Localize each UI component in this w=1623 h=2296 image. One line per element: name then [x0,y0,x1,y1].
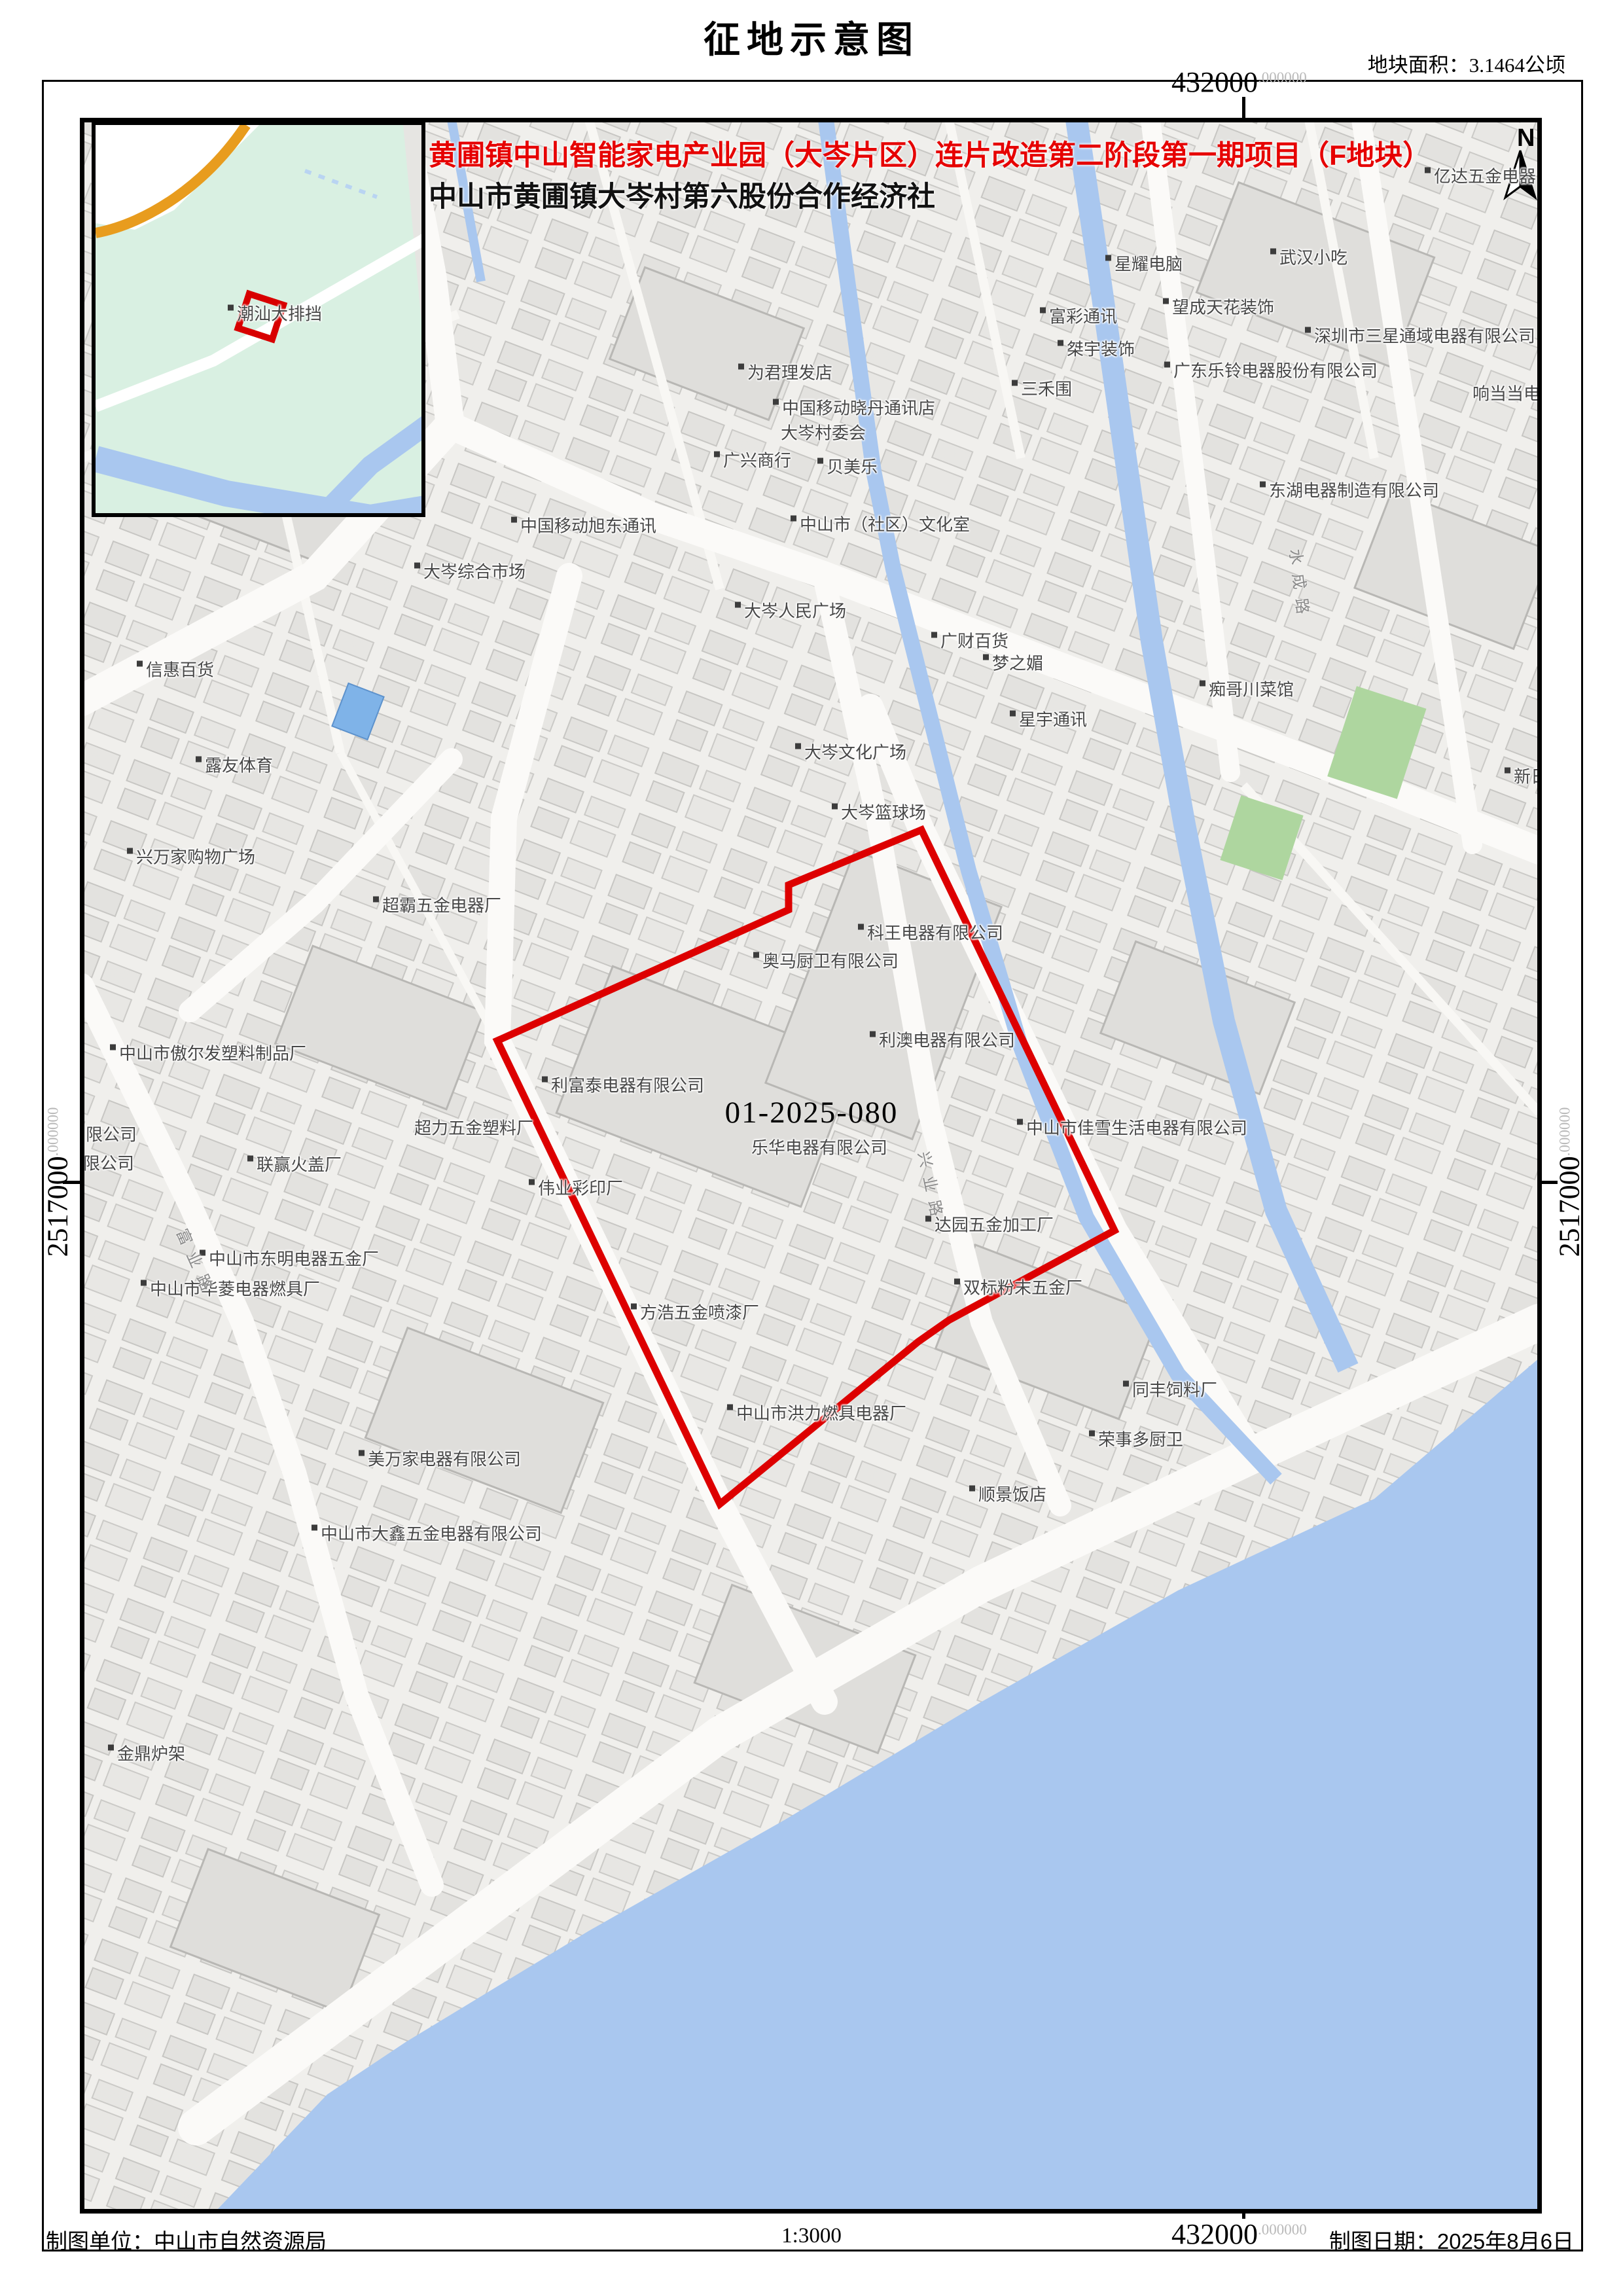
map-label: 限公司 [83,1151,134,1175]
map-label: 伟业彩印厂 [529,1175,623,1200]
grid-coordinate-top: 432000.000000 [1171,65,1307,99]
map-label: 广东乐铃电器股份有限公司 [1164,358,1378,382]
map-label: 为君理发店 [738,360,832,384]
map-label: 同丰饲料厂 [1123,1377,1217,1401]
map-label: 深圳市三星通域电器有限公司 [1305,323,1535,348]
map-label: 痴哥川菜馆 [1200,677,1294,701]
map-label: 三禾围 [1012,376,1072,401]
map-label: 广兴商行 [714,448,791,472]
map-label: 金鼎炉架 [108,1741,185,1765]
map-label: 潮汕大排挡 [228,301,322,325]
map-label: 荣事多厨卫 [1089,1427,1183,1451]
map-label: 联赢火盖厂 [247,1152,342,1176]
footer-bar: 制图单位：中山市自然资源局 1:3000 制图日期：2025年8月6日 [0,2224,1623,2257]
grid-tick-right [1539,1181,1558,1184]
map-label: 中山市傲尔发塑料制品厂 [110,1041,306,1065]
map-label: 大岑篮球场 [832,800,926,824]
map-label: 富彩通讯 [1040,304,1117,328]
project-title: 黄圃镇中山智能家电产业园（大岑片区）连片改造第二阶段第一期项目（F地块） [429,133,1431,173]
map-label: 乐华电器有限公司 [751,1135,887,1159]
map-label: 顺景饭店 [969,1482,1046,1506]
map-label: 武汉小吃 [1270,245,1347,269]
map-label: 桀宇装饰 [1058,336,1135,361]
parcel-area-note: 地块面积：3.1464公顷 [1368,48,1565,78]
map-label: 新日 [1505,764,1542,788]
map-label: 广财百货 [931,628,1008,653]
parcel-code-label: 01-2025-080 [725,1095,899,1130]
grid-tick-top [1242,97,1245,119]
map-label: 中国移动晓丹通讯店 [773,395,935,420]
map-label: 中山市洪力燃具电器厂 [727,1401,906,1425]
map-label: 利富泰电器有限公司 [542,1073,704,1097]
map-label: 中山市佳雪生活电器有限公司 [1017,1115,1247,1139]
map-label: 奥马厨卫有限公司 [753,948,899,973]
map-label: 大岑人民广场 [735,598,846,622]
map-label: 利澳电器有限公司 [870,1028,1015,1052]
map-label: 大岑文化广场 [795,740,906,764]
map-label: 方浩五金喷漆厂 [631,1300,759,1324]
map-label: 中山市东明电器五金厂 [200,1246,379,1270]
map-label: 信惠百货 [137,657,214,681]
map-label: 超霸五金电器厂 [373,893,501,917]
map-label: 梦之媚 [983,651,1043,675]
map-label: 科王电器有限公司 [858,920,1003,944]
map-label: 贝美乐 [817,454,878,478]
footer-date: 制图日期：2025年8月6日 [1329,2224,1574,2255]
map-label: 望成天花装饰 [1163,295,1274,319]
map-label: 星耀电脑 [1105,251,1183,276]
map-label: 中国移动旭东通讯 [511,513,656,537]
map-label: 超力五金塑料厂 [414,1115,533,1139]
map-label: 美万家电器有限公司 [359,1446,521,1471]
map-sheet: 征地示意图 地块面积：3.1464公顷 432000.000000 432000… [0,0,1623,2296]
map-label: 响当当电 [1472,381,1541,405]
map-label: 露友体育 [196,753,273,777]
map-label: 中山市（社区）文化室 [791,512,970,536]
map-label: 东湖电器制造有限公司 [1260,478,1439,502]
map-label: 大岑综合市场 [414,559,526,583]
map-label: 亿达五金电器 [1425,164,1536,188]
organization-title: 中山市黄圃镇大岑村第六股份合作经济社 [429,174,935,215]
grid-coordinate-right: 2517000.000000 [1553,1107,1586,1257]
map-label: 大岑村委会 [781,420,866,444]
map-label: 中山市华菱电器燃具厂 [141,1276,320,1300]
map-canvas[interactable]: 黄圃镇中山智能家电产业园（大岑片区）连片改造第二阶段第一期项目（F地块） 中山市… [80,118,1542,2214]
map-label: 星宇通讯 [1010,707,1087,731]
map-label: 限公司 [86,1122,137,1146]
map-label: 兴万家购物广场 [127,844,255,869]
map-label: 双标粉末五金厂 [954,1275,1082,1299]
map-label: 中山市大鑫五金电器有限公司 [312,1521,542,1545]
